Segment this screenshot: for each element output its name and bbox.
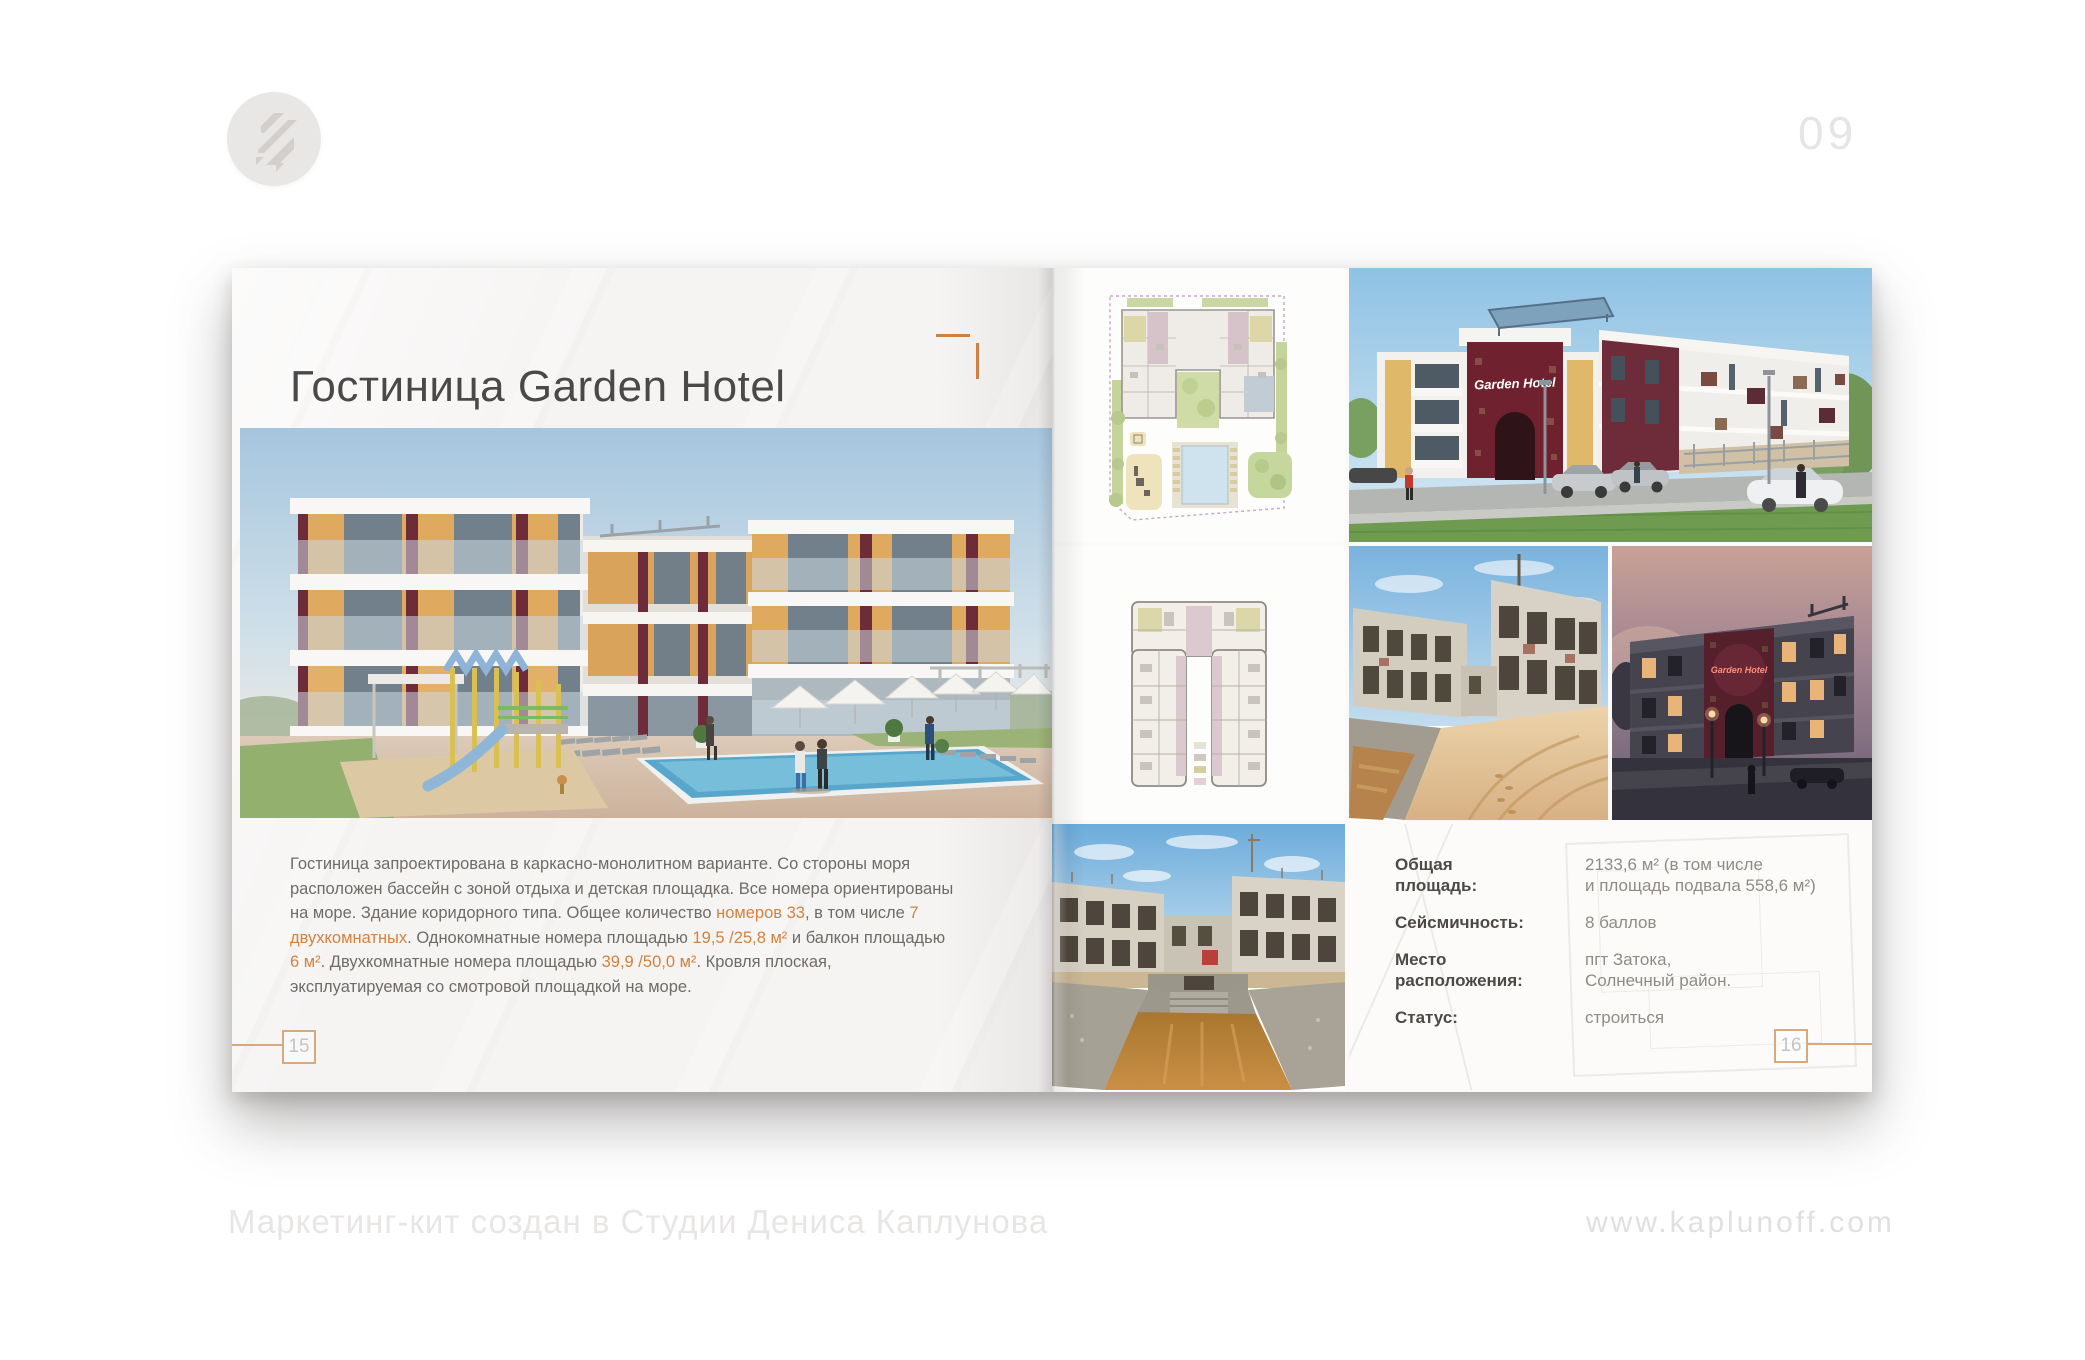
info-value: пгт Затока, Солнечный район. <box>1585 949 1835 991</box>
description-accent: 6 м² <box>290 953 321 971</box>
page-number-right: 16 <box>1774 1029 1808 1063</box>
info-row: Статус:строиться <box>1395 1007 1835 1028</box>
page-number-left-line <box>232 1044 282 1046</box>
site-plan-image <box>1052 268 1345 542</box>
construction-photo-pool <box>1052 824 1345 1090</box>
day-rendering-image: Garden Hotel <box>1349 268 1872 542</box>
site-plan-drawing <box>1052 268 1345 542</box>
title-accent-bracket-vertical <box>976 343 979 379</box>
info-row: Место расположения:пгт Затока, Солнечный… <box>1395 949 1835 991</box>
description-text: и балкон площадью <box>787 929 945 947</box>
info-label: Место расположения: <box>1395 949 1585 991</box>
footer-credit: Маркетинг-кит создан в Студии Дениса Кап… <box>228 1203 1048 1241</box>
day-rendering-drawing: Garden Hotel <box>1349 268 1872 542</box>
background: 09 Гостиница Garden Hotel <box>0 0 2085 1360</box>
info-label: Общая площадь: <box>1395 854 1585 896</box>
info-value: 2133,6 м² (в том числе и площадь подвала… <box>1585 854 1835 896</box>
construction-sand-drawing <box>1349 546 1608 820</box>
info-row: Общая площадь:2133,6 м² (в том числе и п… <box>1395 854 1835 896</box>
dusk-rendering-sign: Garden Hotel <box>1711 665 1768 675</box>
brand-logo <box>227 92 321 186</box>
description-accent: номеров 33 <box>716 904 805 922</box>
info-rows: Общая площадь:2133,6 м² (в том числе и п… <box>1395 854 1835 1044</box>
hero-rendering-drawing <box>240 428 1052 818</box>
hero-rendering-image <box>240 428 1052 818</box>
project-description: Гостиница запроектирована в каркасно-мон… <box>290 852 958 999</box>
page-number-left: 15 <box>282 1030 316 1064</box>
brochure-spread: Гостиница Garden Hotel <box>232 268 1872 1092</box>
page-title: Гостиница Garden Hotel <box>290 362 786 412</box>
construction-pool-drawing <box>1052 824 1345 1090</box>
title-accent-bracket <box>936 334 970 337</box>
description-accent: 39,9 /50,0 м² <box>602 953 697 971</box>
info-value: строиться <box>1585 1007 1835 1028</box>
page-number-right-value: 16 <box>1780 1035 1801 1057</box>
info-label: Статус: <box>1395 1007 1585 1028</box>
left-page: Гостиница Garden Hotel <box>232 268 1052 1092</box>
floor-plan-drawing <box>1052 546 1345 820</box>
dusk-rendering-drawing: Garden Hotel <box>1612 546 1872 820</box>
description-accent: 19,5 /25,8 м² <box>692 929 787 947</box>
footer-site-url: www.kaplunoff.com <box>1586 1206 1895 1240</box>
dusk-rendering-image: Garden Hotel <box>1612 546 1872 820</box>
page-number-left-value: 15 <box>288 1036 309 1058</box>
info-row: Сейсмичность:8 баллов <box>1395 912 1835 933</box>
info-label: Сейсмичность: <box>1395 912 1585 933</box>
spread-page-badge: 09 <box>1798 106 1857 160</box>
kaplunoff-logo-icon <box>228 93 320 185</box>
info-value: 8 баллов <box>1585 912 1835 933</box>
construction-photo-sand <box>1349 546 1608 820</box>
description-text: . Двухкомнатные номера площадью <box>321 953 602 971</box>
description-text: . Однокомнатные номера площадью <box>407 929 692 947</box>
page-number-right-line <box>1808 1043 1872 1045</box>
description-text: , в том числе <box>805 904 909 922</box>
floor-plan-image <box>1052 546 1345 820</box>
right-page: Garden Hotel <box>1052 268 1872 1092</box>
